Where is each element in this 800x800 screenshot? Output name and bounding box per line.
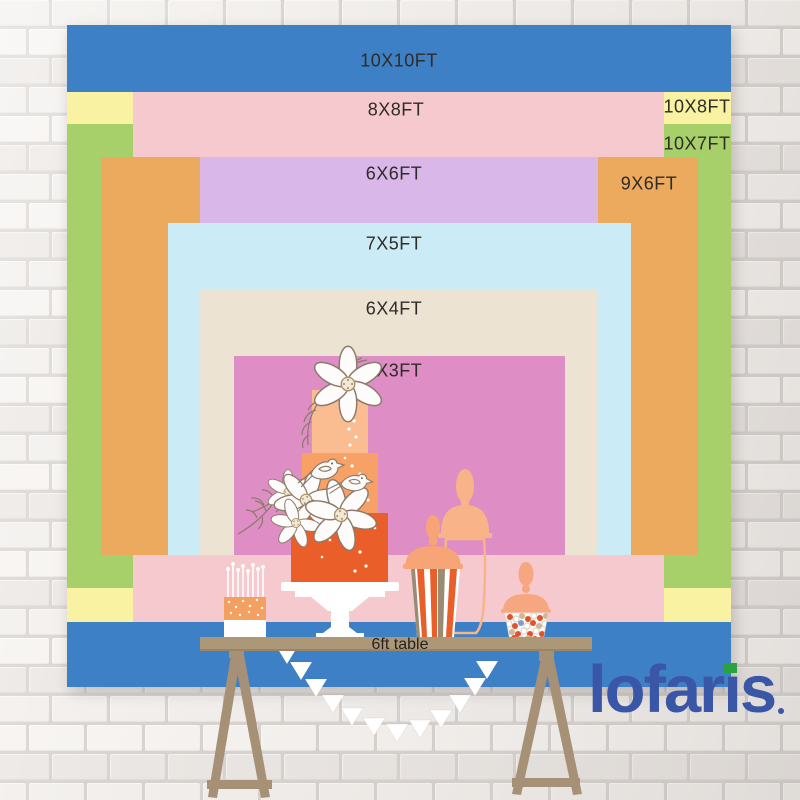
product-image: 10X10FT 10X8FT 10X7FT 8X8FT 9X6FT 6X6FT … (0, 0, 800, 800)
bunting-icon (276, 646, 498, 742)
candle-cake-icon (224, 562, 266, 638)
logo-text: lofar (588, 652, 723, 727)
trestle-table (200, 637, 592, 798)
logo-letter-i: ı (723, 656, 740, 723)
lofaris-logo: lofarıs (588, 656, 775, 723)
logo-green-dot-icon (724, 663, 737, 673)
tiered-cake-icon (238, 346, 399, 639)
cake-stand (281, 582, 399, 639)
candy-jar-icon (501, 562, 551, 642)
table-size-label: 6ft table (372, 636, 429, 654)
logo-text: s (740, 652, 775, 727)
